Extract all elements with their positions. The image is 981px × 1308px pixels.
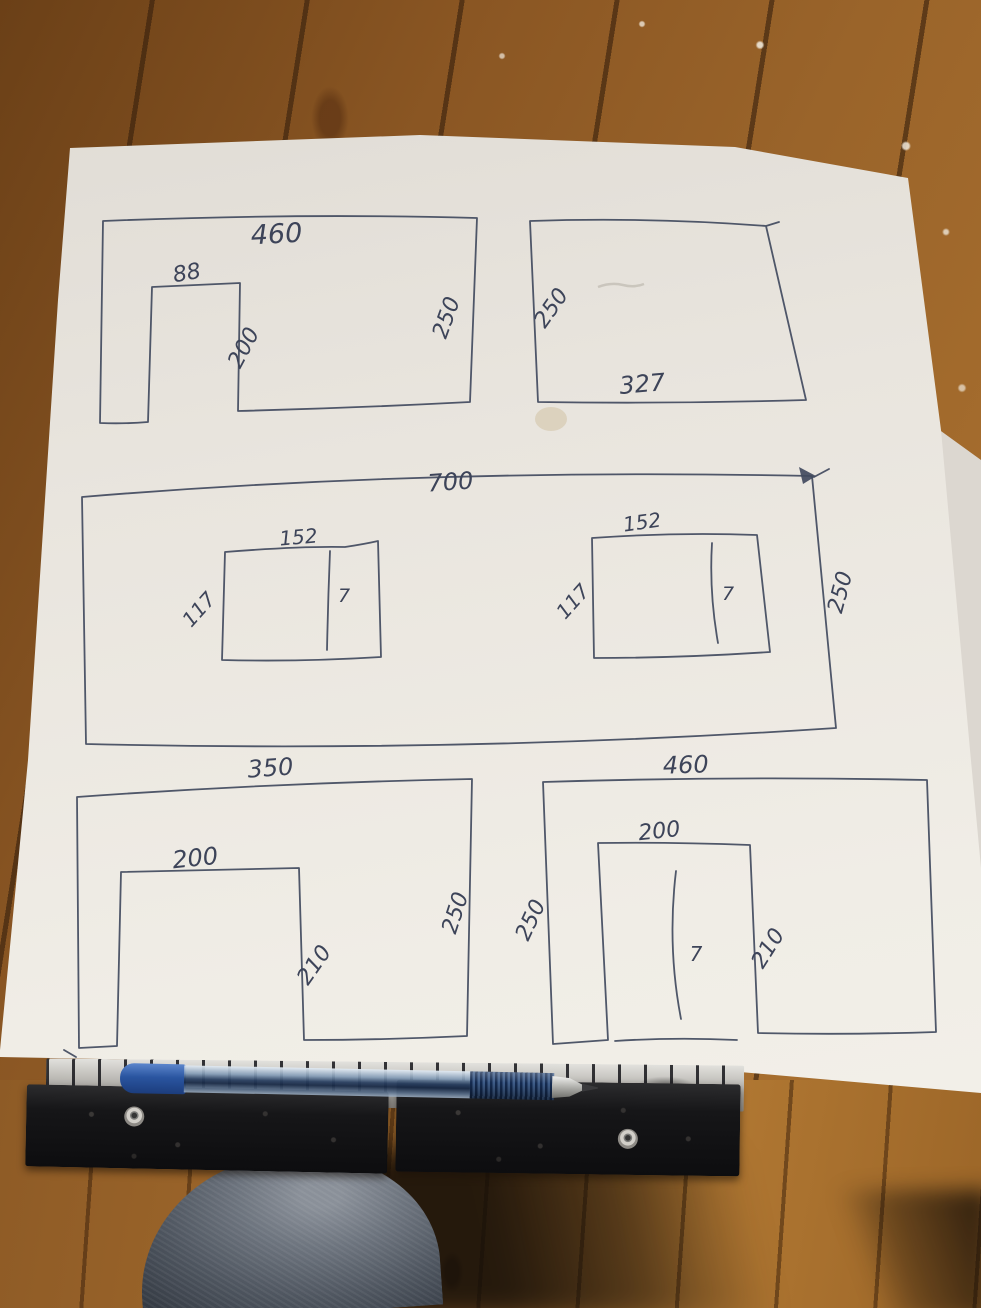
stray-pen-mark <box>64 1050 76 1057</box>
wall-bottom-right: 460 200 250 210 7 <box>511 750 936 1044</box>
corner-shadow <box>830 1190 981 1308</box>
dim-divider: 7 <box>690 942 703 966</box>
pen-metal-cone <box>552 1076 584 1099</box>
dim-opening-width: 88 <box>171 259 203 288</box>
dim-width: 327 <box>618 368 667 400</box>
dim-divider: 7 <box>722 583 734 605</box>
pen-tip <box>582 1084 598 1092</box>
wall-bottom-left: 350 200 210 250 <box>77 752 474 1048</box>
dim-divider: 7 <box>338 585 350 607</box>
dim-height: 117 <box>551 579 595 624</box>
pencil-smudge <box>598 284 644 287</box>
dim-opening-height: 200 <box>223 324 265 373</box>
dim-opening-width: 200 <box>637 817 681 846</box>
wall-outline <box>77 779 472 1048</box>
dim-height: 250 <box>529 284 574 333</box>
photo-scene: 460 88 200 250 250 327 700 250 <box>0 0 981 1308</box>
dim-height: 250 <box>823 569 858 616</box>
pen-grip <box>470 1071 555 1100</box>
dim-width: 700 <box>427 466 475 497</box>
wall-outline <box>543 778 936 1044</box>
rivet-icon <box>124 1106 144 1126</box>
dim-opening-height: 210 <box>292 941 337 990</box>
window-outline <box>222 541 381 661</box>
dim-height: 250 <box>511 896 551 945</box>
paper-stain <box>535 407 567 431</box>
pen-cap <box>120 1063 187 1094</box>
wall-top-left: 460 88 200 250 <box>100 216 477 423</box>
dim-width: 460 <box>662 750 709 780</box>
window-outline <box>592 534 770 658</box>
arrowhead <box>799 467 816 484</box>
wall-top-right: 250 327 <box>529 220 806 431</box>
rivet-icon <box>618 1129 638 1149</box>
dim-height: 117 <box>177 587 221 632</box>
dim-width: 350 <box>247 752 295 783</box>
dim-width: 152 <box>278 523 318 550</box>
window-left: 152 117 7 <box>177 523 381 660</box>
pen-barrel <box>184 1065 473 1098</box>
dim-opening-width: 200 <box>171 842 219 875</box>
wall-outline <box>530 220 806 403</box>
dim-width: 460 <box>250 218 303 252</box>
window-right: 152 117 7 <box>551 508 770 658</box>
dim-height: 250 <box>428 294 466 342</box>
dim-width: 152 <box>621 508 662 537</box>
wall-middle: 700 250 152 117 7 152 117 7 <box>82 466 858 746</box>
